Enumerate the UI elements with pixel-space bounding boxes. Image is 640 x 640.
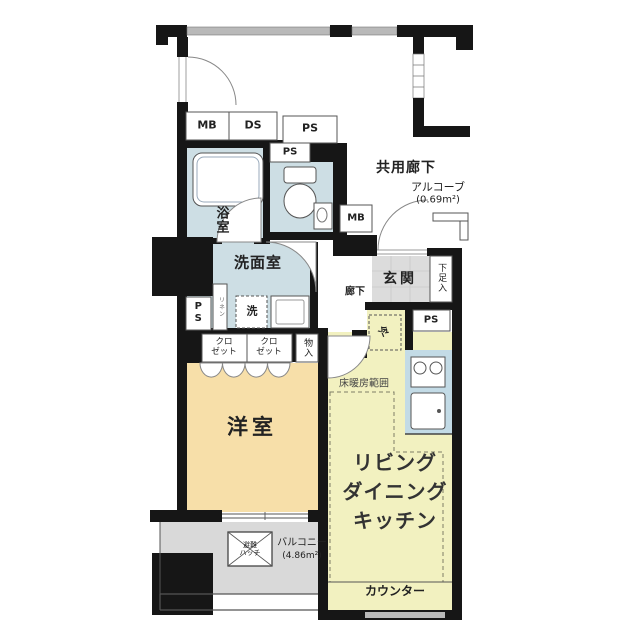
corridor-window xyxy=(187,27,330,35)
ldk-label-line2: ダイニング xyxy=(343,481,448,504)
pillar xyxy=(152,237,213,296)
toilet-tank xyxy=(284,167,316,183)
ps-top-label: PS xyxy=(302,123,318,136)
wall xyxy=(263,148,270,242)
closet2-label: クロ ゼット xyxy=(256,338,282,358)
linen-label: リネン xyxy=(217,297,224,318)
closet1-label: クロ ゼット xyxy=(211,338,237,358)
ps-toilet-label: PS xyxy=(283,146,298,158)
pillar xyxy=(152,553,213,615)
alcove-step xyxy=(460,221,468,240)
shoe-box-label: 下足入 xyxy=(436,263,446,293)
bathroom-label: 浴室 xyxy=(213,206,228,234)
washer-label: 洗 xyxy=(247,306,258,319)
balcony-label: バルコニー xyxy=(277,537,327,549)
wall xyxy=(365,302,452,310)
common-door-opening xyxy=(179,57,186,102)
corridor-window xyxy=(352,27,397,35)
wall xyxy=(177,140,283,148)
evacuation-hatch-label: 避難 ハッチ xyxy=(240,541,261,557)
floor-heating-label: 床暖房範囲 xyxy=(337,378,391,390)
western-room-label: 洋室 xyxy=(227,415,277,439)
wall xyxy=(150,510,222,522)
ps-left-label: PS xyxy=(192,301,204,325)
alcove-label: アルコーブ xyxy=(411,182,465,195)
ps-kitchen-label: PS xyxy=(424,314,439,326)
wall xyxy=(310,143,347,162)
wall xyxy=(270,232,333,240)
wall xyxy=(405,310,413,352)
counter-label: カウンター xyxy=(365,585,425,599)
entry-door-sill xyxy=(377,250,427,254)
hall-label: 廊下 xyxy=(345,286,365,298)
faucet xyxy=(437,409,441,413)
mb-entry-label: MB xyxy=(347,212,365,224)
floor-plan: MB DS PS PS 共用廊下 アルコーブ (0.69m²) MB 玄関 下足… xyxy=(0,0,640,640)
wall xyxy=(456,37,473,50)
ldk-label-line3: キッチン xyxy=(353,510,437,533)
wall xyxy=(330,25,352,37)
balcony-area: (4.86m²) xyxy=(282,551,321,561)
toilet-bowl xyxy=(284,184,316,218)
storage-label: 物入 xyxy=(302,338,312,358)
wall xyxy=(452,248,462,620)
mb-top-label: MB xyxy=(197,120,216,133)
entrance-label: 玄関 xyxy=(383,271,417,287)
alcove-step xyxy=(433,213,468,221)
alcove-area: (0.69m²) xyxy=(416,194,460,206)
wall xyxy=(413,126,470,137)
wall xyxy=(292,332,296,362)
wall xyxy=(318,328,328,512)
ldk-window xyxy=(365,612,445,618)
ds-label: DS xyxy=(244,120,261,133)
wall xyxy=(413,37,424,54)
wall xyxy=(177,37,188,57)
entry-door-arc xyxy=(378,200,428,250)
washroom-label: 洗面室 xyxy=(234,254,282,271)
common-door-arc xyxy=(188,57,236,105)
wall xyxy=(177,148,187,240)
wall xyxy=(156,25,187,37)
ldk-label-line1: リビング xyxy=(353,452,437,475)
wall xyxy=(333,235,377,256)
wall xyxy=(318,512,328,620)
wall xyxy=(397,25,473,37)
bathtub xyxy=(193,153,263,206)
common-corridor-label: 共用廊下 xyxy=(376,160,436,176)
